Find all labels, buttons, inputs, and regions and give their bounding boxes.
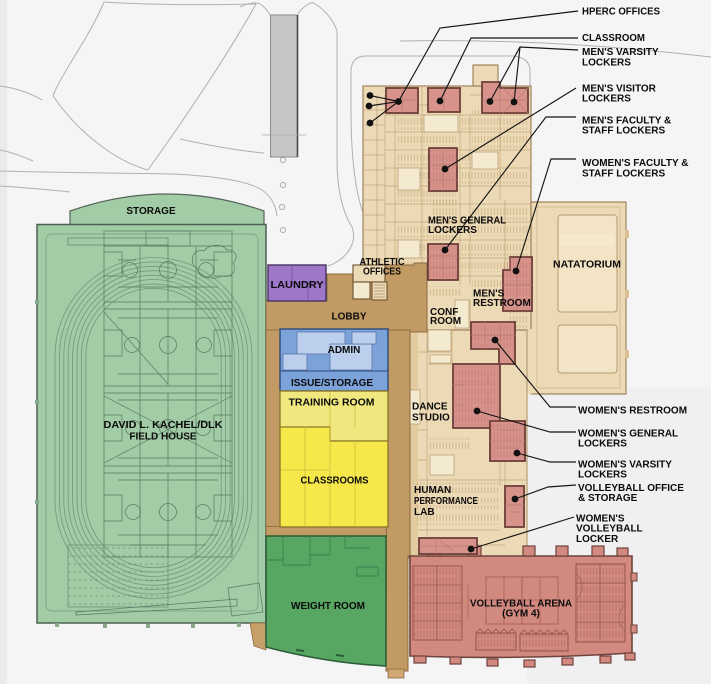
- svg-text:ISSUE/STORAGE: ISSUE/STORAGE: [291, 378, 373, 389]
- svg-text:DAVID L. KACHEL/DLK: DAVID L. KACHEL/DLK: [104, 420, 224, 431]
- svg-text:RESTROOM: RESTROOM: [473, 298, 531, 309]
- svg-text:STAFF LOCKERS: STAFF LOCKERS: [582, 126, 665, 137]
- svg-text:HUMAN: HUMAN: [414, 485, 451, 496]
- svg-text:WOMEN'S RESTROOM: WOMEN'S RESTROOM: [578, 406, 687, 417]
- svg-text:DANCE: DANCE: [412, 402, 448, 413]
- svg-text:LOBBY: LOBBY: [332, 312, 367, 323]
- svg-text:ROOM: ROOM: [430, 316, 461, 327]
- svg-text:CLASSROOM: CLASSROOM: [582, 33, 645, 44]
- svg-text:ADMIN: ADMIN: [328, 345, 361, 356]
- svg-text:VOLLEYBALL: VOLLEYBALL: [576, 524, 643, 535]
- svg-text:FIELD HOUSE: FIELD HOUSE: [129, 432, 197, 443]
- svg-text:TRAINING ROOM: TRAINING ROOM: [289, 398, 375, 409]
- svg-text:LOCKERS: LOCKERS: [428, 225, 477, 236]
- svg-text:LOCKERS: LOCKERS: [578, 439, 627, 450]
- svg-text:LOCKER: LOCKER: [576, 534, 619, 545]
- svg-text:WEIGHT ROOM: WEIGHT ROOM: [291, 601, 365, 612]
- svg-text:OFFICES: OFFICES: [363, 267, 401, 278]
- svg-text:STAFF LOCKERS: STAFF LOCKERS: [582, 168, 665, 179]
- svg-text:LOCKERS: LOCKERS: [578, 470, 627, 481]
- svg-text:LAB: LAB: [414, 507, 435, 518]
- svg-text:LAUNDRY: LAUNDRY: [271, 280, 324, 291]
- svg-text:(GYM 4): (GYM 4): [502, 609, 540, 620]
- svg-text:STUDIO: STUDIO: [412, 413, 450, 424]
- svg-text:CLASSROOMS: CLASSROOMS: [301, 476, 369, 487]
- svg-text:NATATORIUM: NATATORIUM: [553, 260, 621, 271]
- svg-text:STORAGE: STORAGE: [126, 206, 176, 217]
- svg-text:LOCKERS: LOCKERS: [582, 57, 631, 68]
- svg-text:& STORAGE: & STORAGE: [578, 493, 638, 504]
- svg-text:HPERC OFFICES: HPERC OFFICES: [582, 7, 660, 18]
- svg-text:LOCKERS: LOCKERS: [582, 94, 631, 105]
- svg-text:PERFORMANCE: PERFORMANCE: [414, 496, 478, 507]
